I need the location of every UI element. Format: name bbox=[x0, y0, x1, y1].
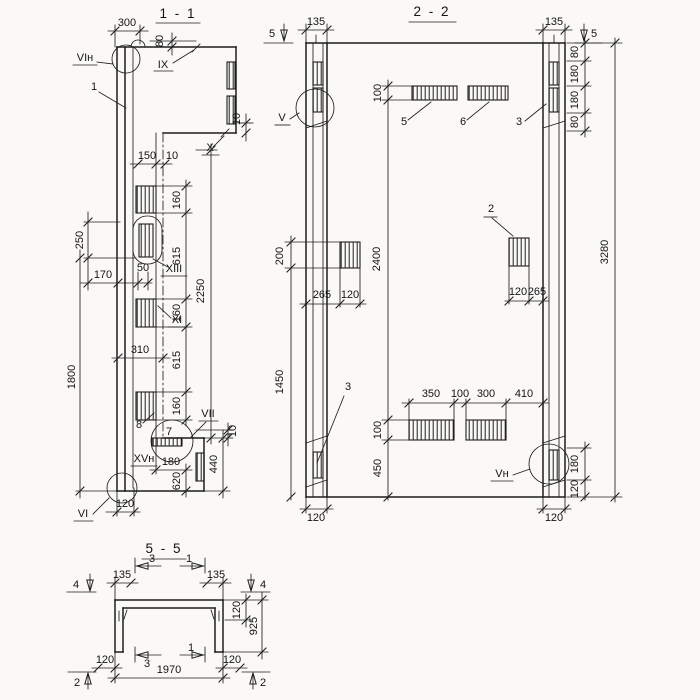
dim-160-c: 160 bbox=[171, 397, 183, 415]
section-5-5-outline bbox=[115, 600, 223, 652]
section-1-1-view: 1 - 1 bbox=[66, 6, 253, 521]
mark-pos-3-bottom: 3 bbox=[345, 381, 351, 393]
mark-xi: XI bbox=[172, 314, 182, 326]
dim-135-left: 135 bbox=[113, 569, 131, 581]
mark-v: V bbox=[278, 112, 286, 124]
dim-1800: 1800 bbox=[66, 365, 78, 389]
dim-310: 310 bbox=[131, 344, 149, 356]
rebar-mesh bbox=[340, 242, 360, 268]
column-hatch bbox=[313, 88, 323, 112]
rebar-hatch bbox=[136, 299, 156, 327]
dim-3280: 3280 bbox=[599, 240, 611, 264]
mark-pos-8: 8 bbox=[136, 419, 142, 431]
rebar-hatch bbox=[136, 186, 156, 213]
dim-300: 300 bbox=[477, 388, 495, 400]
cut-marker-4-right: 4 bbox=[260, 579, 266, 591]
dim-120-left: 120 bbox=[341, 289, 359, 301]
dim-50: 50 bbox=[137, 262, 149, 274]
drawing-canvas: 1 - 1 bbox=[0, 0, 700, 700]
dim-265-left: 265 bbox=[313, 289, 331, 301]
mark-pos-3-top: 3 bbox=[516, 116, 522, 128]
section-5-5-view: 5 - 5 bbox=[67, 541, 270, 689]
dim-100-top: 100 bbox=[372, 84, 384, 102]
mark-pos-6: 6 bbox=[460, 116, 466, 128]
dim-120-bl: 120 bbox=[307, 512, 325, 524]
dim-120-flange: 120 bbox=[231, 601, 243, 619]
dim-1450: 1450 bbox=[274, 370, 286, 394]
dim-450: 450 bbox=[372, 459, 384, 477]
dim-180-1: 180 bbox=[569, 65, 581, 83]
mark-pos-1: 1 bbox=[91, 81, 97, 93]
drawing-sheet: 1 - 1 bbox=[0, 0, 700, 700]
dim-120-br: 120 bbox=[569, 480, 581, 498]
dim-440: 440 bbox=[208, 455, 220, 473]
cut-marker-5-left: 5 bbox=[269, 28, 275, 40]
dim-120-br: 120 bbox=[223, 654, 241, 666]
dim-180-br: 180 bbox=[569, 455, 581, 473]
dim-120-bc: 120 bbox=[545, 512, 563, 524]
mark-vi-top: VIн bbox=[77, 52, 93, 64]
dim-2250: 2250 bbox=[195, 279, 207, 303]
dim-265-mid: 265 bbox=[528, 286, 546, 298]
mark-x: X bbox=[206, 142, 214, 154]
key-notch-hatch bbox=[196, 453, 204, 481]
dim-180-2: 180 bbox=[569, 91, 581, 109]
dim-160-a: 160 bbox=[171, 191, 183, 209]
mark-vii: VII bbox=[201, 408, 214, 420]
dim-100-row: 100 bbox=[451, 388, 469, 400]
dim-120-bl: 120 bbox=[96, 654, 114, 666]
section-2-2-view: 2 - 2 bbox=[264, 4, 622, 524]
dim-620: 620 bbox=[171, 472, 183, 490]
dim-170: 170 bbox=[94, 269, 112, 281]
dim-150: 150 bbox=[138, 150, 156, 162]
dim-135-right: 135 bbox=[545, 16, 563, 28]
section-2-2-rebar-zones bbox=[313, 62, 559, 480]
column-hatch bbox=[313, 62, 323, 85]
rebar-mesh bbox=[409, 420, 454, 440]
mark-pos-7: 7 bbox=[166, 426, 172, 438]
dim-80: 80 bbox=[154, 35, 166, 47]
dim-615-b: 615 bbox=[171, 351, 183, 369]
mark-pos-5: 5 bbox=[401, 116, 407, 128]
dim-10-step: 10 bbox=[231, 113, 243, 125]
mark-vi-bottom: VI bbox=[78, 508, 88, 520]
cut-marker-2-right: 2 bbox=[260, 677, 266, 689]
column-hatch bbox=[549, 62, 559, 85]
rebar-mesh-5 bbox=[412, 86, 457, 100]
dim-250: 250 bbox=[74, 231, 86, 249]
cut-marker-1-top: 1 bbox=[186, 553, 192, 565]
mark-pos-2: 2 bbox=[488, 203, 494, 215]
rebar-mesh-2 bbox=[509, 238, 529, 266]
dim-925: 925 bbox=[248, 617, 260, 635]
mark-v-bottom: Vн bbox=[495, 468, 508, 480]
detail-circle-vi-top bbox=[112, 45, 140, 73]
dim-80-2: 80 bbox=[569, 116, 581, 128]
lifting-slot-hatch bbox=[139, 224, 153, 257]
dim-1970: 1970 bbox=[157, 664, 181, 676]
dim-350: 350 bbox=[422, 388, 440, 400]
dim-410: 410 bbox=[515, 388, 533, 400]
dim-120-mid: 120 bbox=[509, 286, 527, 298]
dim-2400: 2400 bbox=[371, 247, 383, 271]
column-hatch bbox=[549, 88, 559, 112]
dim-10-gap: 10 bbox=[166, 150, 178, 162]
rebar-mesh-6 bbox=[468, 86, 508, 100]
cut-marker-3-bottom: 3 bbox=[144, 658, 150, 670]
cut-marker-1-bottom: 1 bbox=[188, 642, 194, 654]
cut-marker-2-left: 2 bbox=[74, 677, 80, 689]
rebar-mesh bbox=[466, 420, 506, 440]
mark-xiii: XIII bbox=[166, 263, 183, 275]
dim-135-left: 135 bbox=[307, 16, 325, 28]
column-hatch bbox=[549, 450, 559, 480]
dim-10-heel: 10 bbox=[227, 425, 239, 437]
dim-120: 120 bbox=[116, 498, 134, 510]
rebar-hatch bbox=[136, 392, 156, 420]
cut-marker-4-left: 4 bbox=[73, 579, 79, 591]
mark-xv: XVн bbox=[134, 453, 155, 465]
cut-marker-5-right: 5 bbox=[591, 28, 597, 40]
dim-100-bot: 100 bbox=[372, 421, 384, 439]
column-hatch bbox=[313, 452, 323, 478]
mark-ix: IX bbox=[158, 59, 169, 71]
dim-180: 180 bbox=[162, 456, 180, 468]
section-5-5-ext-lines bbox=[115, 577, 268, 683]
dim-135-right: 135 bbox=[207, 569, 225, 581]
key-notch-hatch bbox=[227, 62, 235, 89]
heel-detail-hatch bbox=[152, 438, 182, 446]
section-2-2-title: 2 - 2 bbox=[413, 4, 450, 19]
dim-200: 200 bbox=[274, 247, 286, 265]
dim-80-1: 80 bbox=[569, 46, 581, 58]
section-1-1-title: 1 - 1 bbox=[159, 6, 196, 21]
dim-300: 300 bbox=[118, 17, 136, 29]
cut-marker-3-top: 3 bbox=[149, 553, 155, 565]
